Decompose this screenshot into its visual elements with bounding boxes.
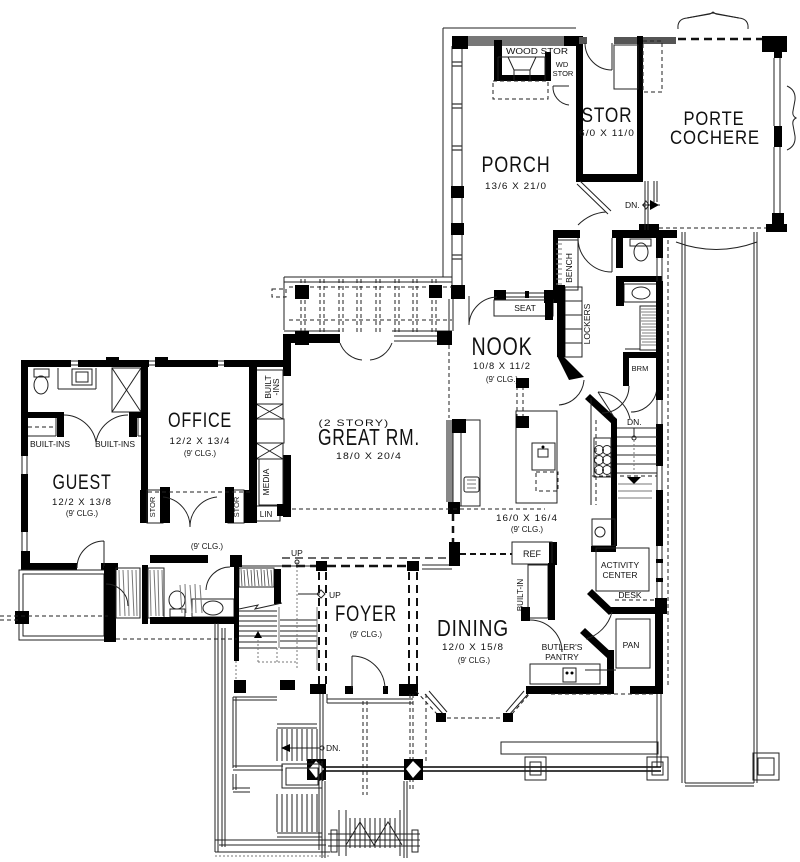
svg-text:PANTRY: PANTRY [545,652,579,662]
svg-text:DINING: DINING [437,615,509,641]
svg-text:-INS: -INS [271,378,281,395]
svg-text:WOOD STOR: WOOD STOR [506,47,568,56]
svg-text:FOYER: FOYER [335,601,397,626]
svg-text:(9' CLG.): (9' CLG.) [511,525,544,534]
svg-text:STOR: STOR [582,104,633,127]
svg-text:BRM: BRM [632,364,649,373]
svg-text:16/0 X 16/4: 16/0 X 16/4 [496,513,558,524]
svg-text:PORTE: PORTE [684,109,745,130]
svg-text:PAN: PAN [623,640,640,650]
svg-text:STOR: STOR [232,496,241,517]
svg-text:NOOK: NOOK [472,333,533,361]
svg-text:WD: WD [556,60,569,69]
svg-text:BUILT-INS: BUILT-INS [95,439,135,449]
svg-text:(9' CLG.): (9' CLG.) [350,630,383,639]
svg-text:BENCH: BENCH [564,253,574,283]
svg-text:12/2 X 13/4: 12/2 X 13/4 [170,436,231,447]
svg-text:CENTER: CENTER [603,570,638,580]
svg-text:(9' CLG.): (9' CLG.) [184,449,217,458]
svg-text:12/0 X 15/8: 12/0 X 15/8 [442,642,504,653]
svg-text:10/8 X 11/2: 10/8 X 11/2 [473,361,531,372]
svg-text:LOCKERS: LOCKERS [582,303,592,344]
svg-text:ACTIVITY: ACTIVITY [601,560,640,570]
svg-text:BUILT-IN: BUILT-IN [516,579,525,612]
svg-text:BUILT-INS: BUILT-INS [30,439,70,449]
svg-text:UP: UP [329,590,341,600]
svg-text:(9' CLG.): (9' CLG.) [486,375,519,384]
svg-text:6/0 X 11/0: 6/0 X 11/0 [579,128,635,139]
svg-text:COCHERE: COCHERE [670,128,760,149]
svg-text:(9' CLG.): (9' CLG.) [66,509,99,518]
svg-text:13/6 X 21/0: 13/6 X 21/0 [485,181,547,192]
svg-text:MEDIA: MEDIA [261,468,271,495]
svg-text:GUEST: GUEST [53,471,112,494]
svg-text:PORCH: PORCH [482,152,551,177]
svg-text:SEAT: SEAT [514,303,536,313]
svg-text:UP: UP [291,548,303,558]
svg-text:12/2 X 13/8: 12/2 X 13/8 [52,497,112,508]
svg-text:DN.: DN. [625,200,640,210]
svg-text:DN.: DN. [326,743,341,753]
svg-text:DESK: DESK [618,590,641,600]
svg-text:OFFICE: OFFICE [168,409,232,432]
svg-text:LIN: LIN [260,510,273,519]
svg-text:(9' CLG.): (9' CLG.) [191,542,224,551]
svg-text:DN.: DN. [627,417,642,427]
svg-text:STOR: STOR [148,496,157,517]
svg-text:REF: REF [523,549,542,559]
svg-text:(9' CLG.): (9' CLG.) [458,656,491,665]
svg-text:GREAT RM.: GREAT RM. [318,424,420,450]
svg-text:18/0 X 20/4: 18/0 X 20/4 [336,451,402,462]
svg-text:STOR: STOR [553,69,574,78]
